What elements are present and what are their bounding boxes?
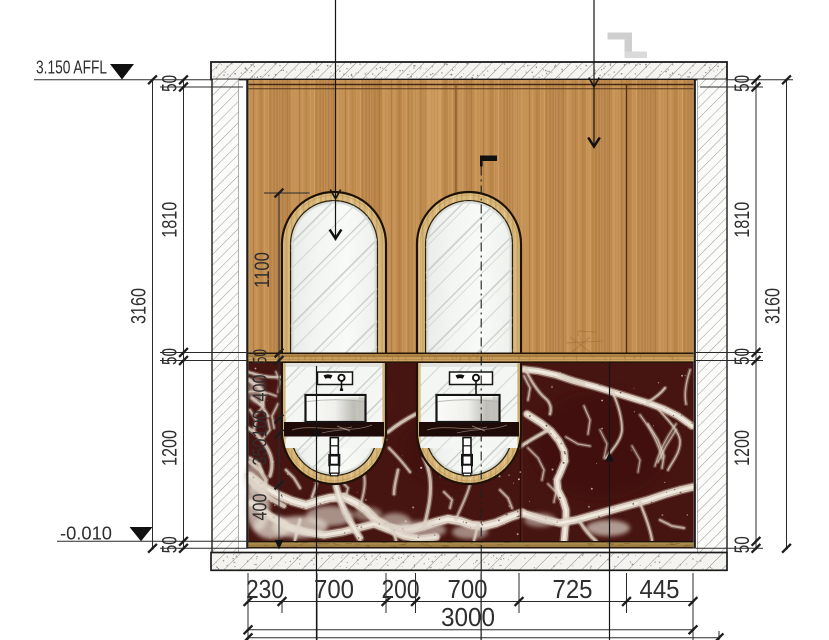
svg-text:400: 400 (250, 494, 272, 521)
svg-text:3160: 3160 (128, 288, 151, 324)
svg-text:350: 350 (250, 439, 272, 466)
svg-text:50: 50 (159, 348, 182, 365)
svg-text:50: 50 (159, 75, 182, 92)
svg-text:1200: 1200 (159, 430, 182, 466)
svg-text:-0.010: -0.010 (60, 524, 112, 544)
svg-text:50: 50 (731, 348, 754, 365)
svg-text:100: 100 (250, 411, 272, 438)
svg-text:1810: 1810 (159, 202, 182, 238)
svg-text:50: 50 (731, 536, 754, 553)
svg-text:230: 230 (246, 574, 284, 604)
svg-text:445: 445 (640, 574, 680, 604)
svg-text:50: 50 (731, 75, 754, 92)
svg-text:3000: 3000 (441, 602, 495, 632)
svg-text:50: 50 (159, 536, 182, 553)
svg-text:200: 200 (382, 574, 420, 604)
svg-text:3160: 3160 (762, 288, 785, 324)
svg-text:1100: 1100 (251, 252, 274, 288)
svg-text:1200: 1200 (731, 430, 754, 466)
svg-text:700: 700 (448, 574, 488, 604)
svg-text:700: 700 (314, 574, 354, 604)
svg-text:3.150 AFFL: 3.150 AFFL (36, 58, 107, 78)
svg-text:725: 725 (553, 574, 593, 604)
svg-text:1810: 1810 (731, 202, 754, 238)
svg-text:400: 400 (250, 375, 272, 402)
svg-text:50: 50 (251, 349, 272, 364)
